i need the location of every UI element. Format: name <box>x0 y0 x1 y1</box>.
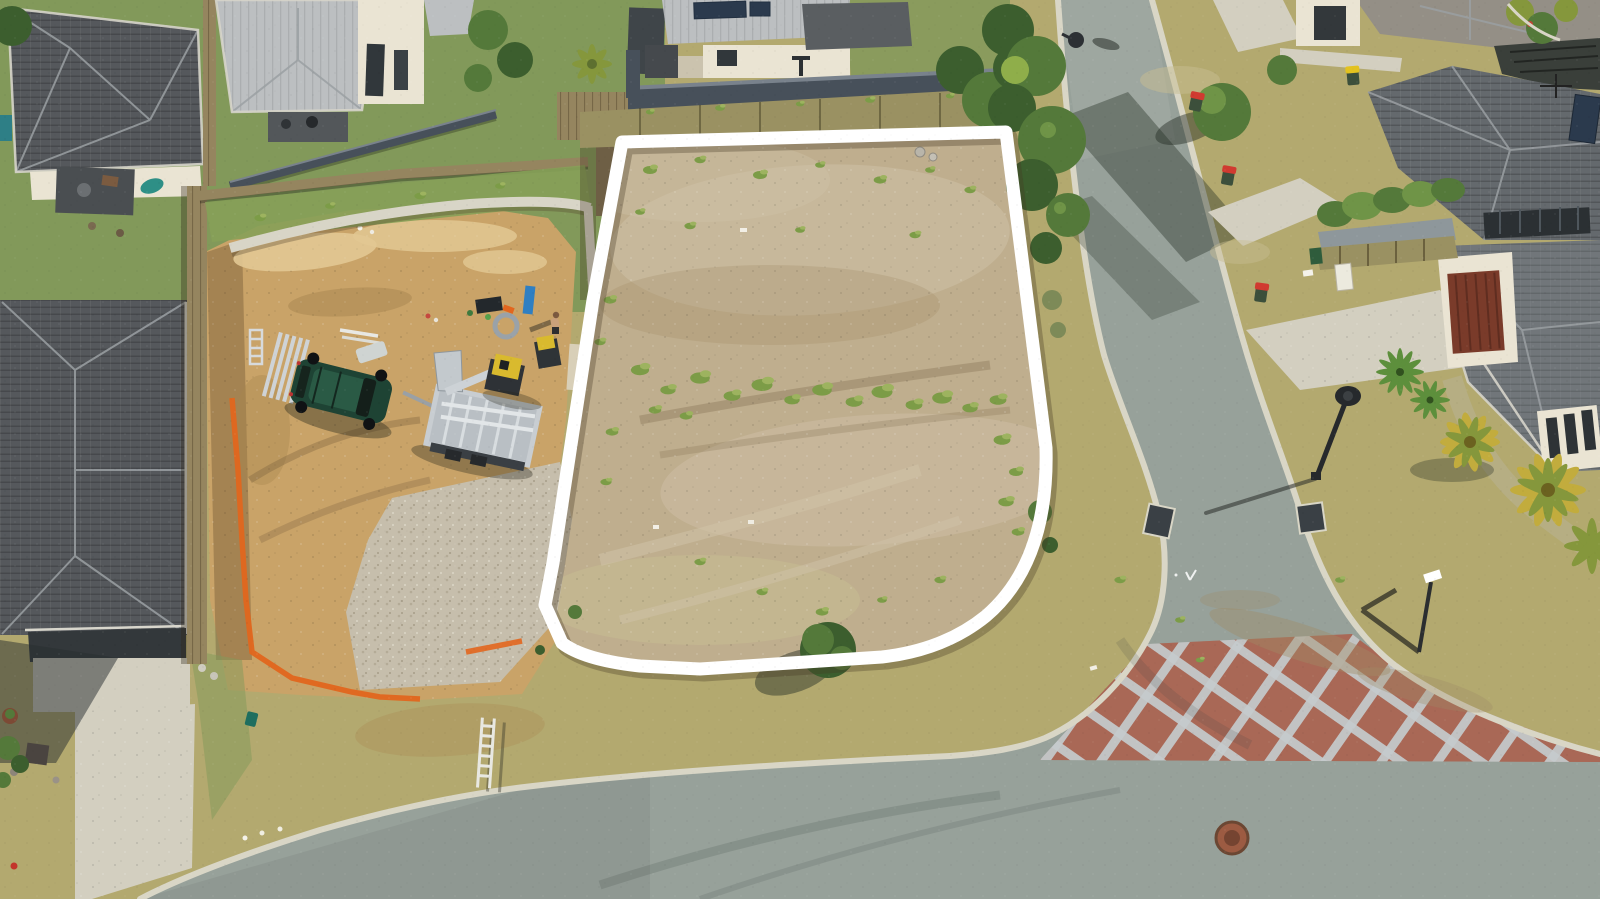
photo-grain <box>0 0 1600 899</box>
aerial-photo: Aerial view of a vacant residential land… <box>0 0 1600 899</box>
aerial-photo-canvas: Aerial view of a vacant residential land… <box>0 0 1600 899</box>
